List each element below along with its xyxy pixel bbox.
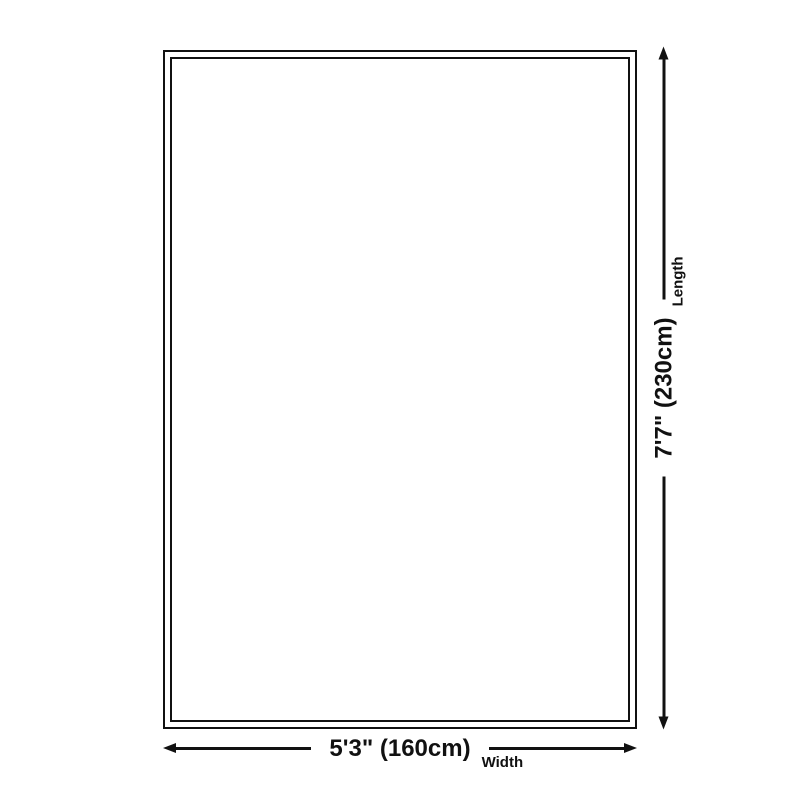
- arrow-up-icon: [659, 46, 669, 59]
- rug-outline: [163, 50, 637, 729]
- length-dimension-line-upper: Length: [662, 59, 665, 299]
- length-dimension-arrow: 7'7" (230cm) Length: [644, 47, 684, 730]
- rug-dimension-diagram: 5'3" (160cm) Width 7'7" (230cm) Length: [0, 0, 800, 800]
- arrow-right-icon: [624, 743, 637, 753]
- width-label: Width: [482, 755, 524, 770]
- width-dimension-arrow: 5'3" (160cm) Width: [163, 728, 637, 768]
- arrow-left-icon: [163, 743, 176, 753]
- rug-inner-border: [170, 57, 630, 722]
- arrow-down-icon: [659, 717, 669, 730]
- width-value: 5'3" (160cm): [329, 735, 470, 763]
- length-value: 7'7" (230cm): [651, 317, 679, 458]
- length-dimension-line-lower: [662, 477, 665, 717]
- length-label: Length: [670, 256, 685, 306]
- width-dimension-line-right: Width: [489, 747, 624, 750]
- width-dimension-line-left: [176, 747, 311, 750]
